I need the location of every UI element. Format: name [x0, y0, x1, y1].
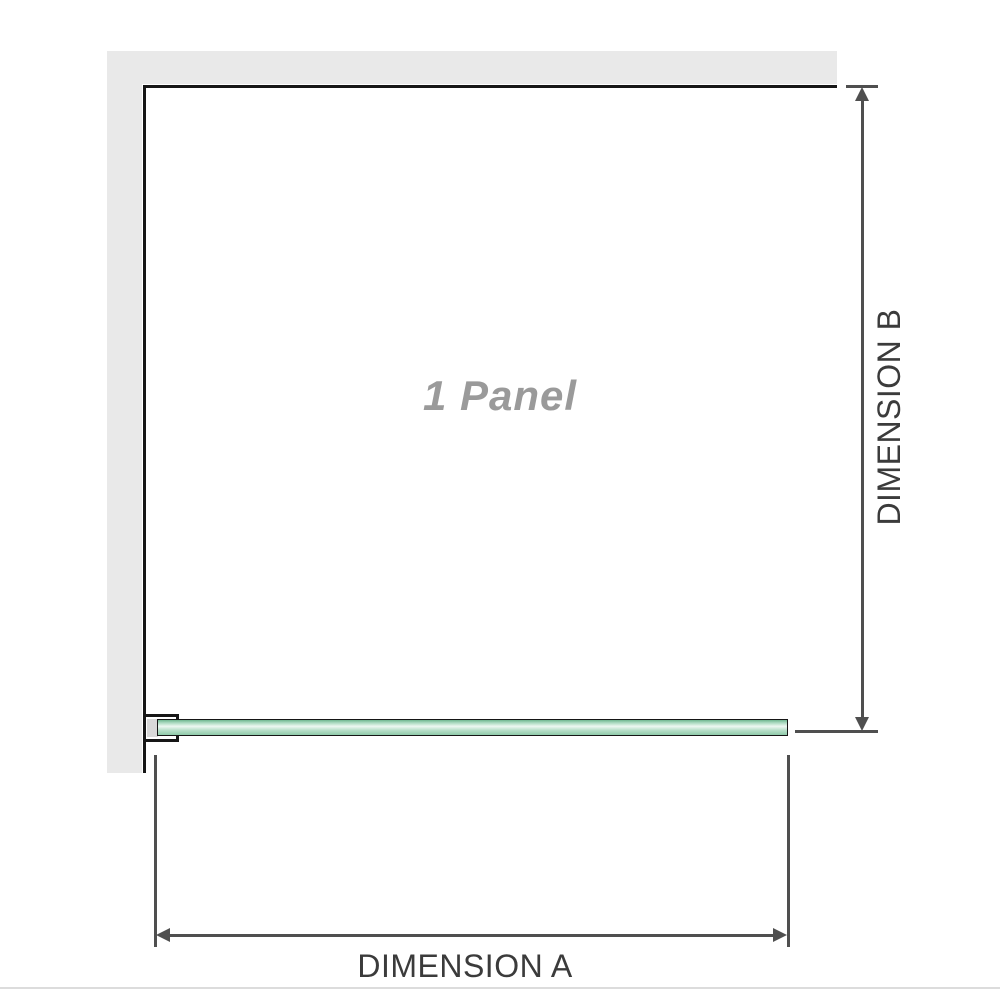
panel-left-edge: [143, 85, 146, 773]
page-divider: [0, 987, 1000, 989]
dimension-a-left-tick: [154, 755, 157, 947]
panel-dimension-diagram: 1 Panel DIMENSION B DIMENSION A: [0, 0, 1000, 1000]
dimension-a-label: DIMENSION A: [350, 948, 580, 985]
wall-side-bar: [107, 51, 142, 773]
arrow-left-icon: [156, 928, 170, 942]
dimension-a-line: [162, 934, 782, 937]
panel-count-label: 1 Panel: [340, 372, 660, 420]
dimension-a-right-tick: [787, 755, 790, 947]
panel-top-edge: [143, 85, 837, 88]
dimension-b-label: DIMENSION B: [871, 302, 903, 532]
wall-ceiling-bar: [107, 51, 837, 84]
dimension-b-line: [861, 99, 864, 721]
arrow-up-icon: [855, 87, 869, 101]
arrow-right-icon: [773, 928, 787, 942]
arrow-down-icon: [855, 717, 869, 731]
glass-panel-bar: [157, 719, 788, 736]
